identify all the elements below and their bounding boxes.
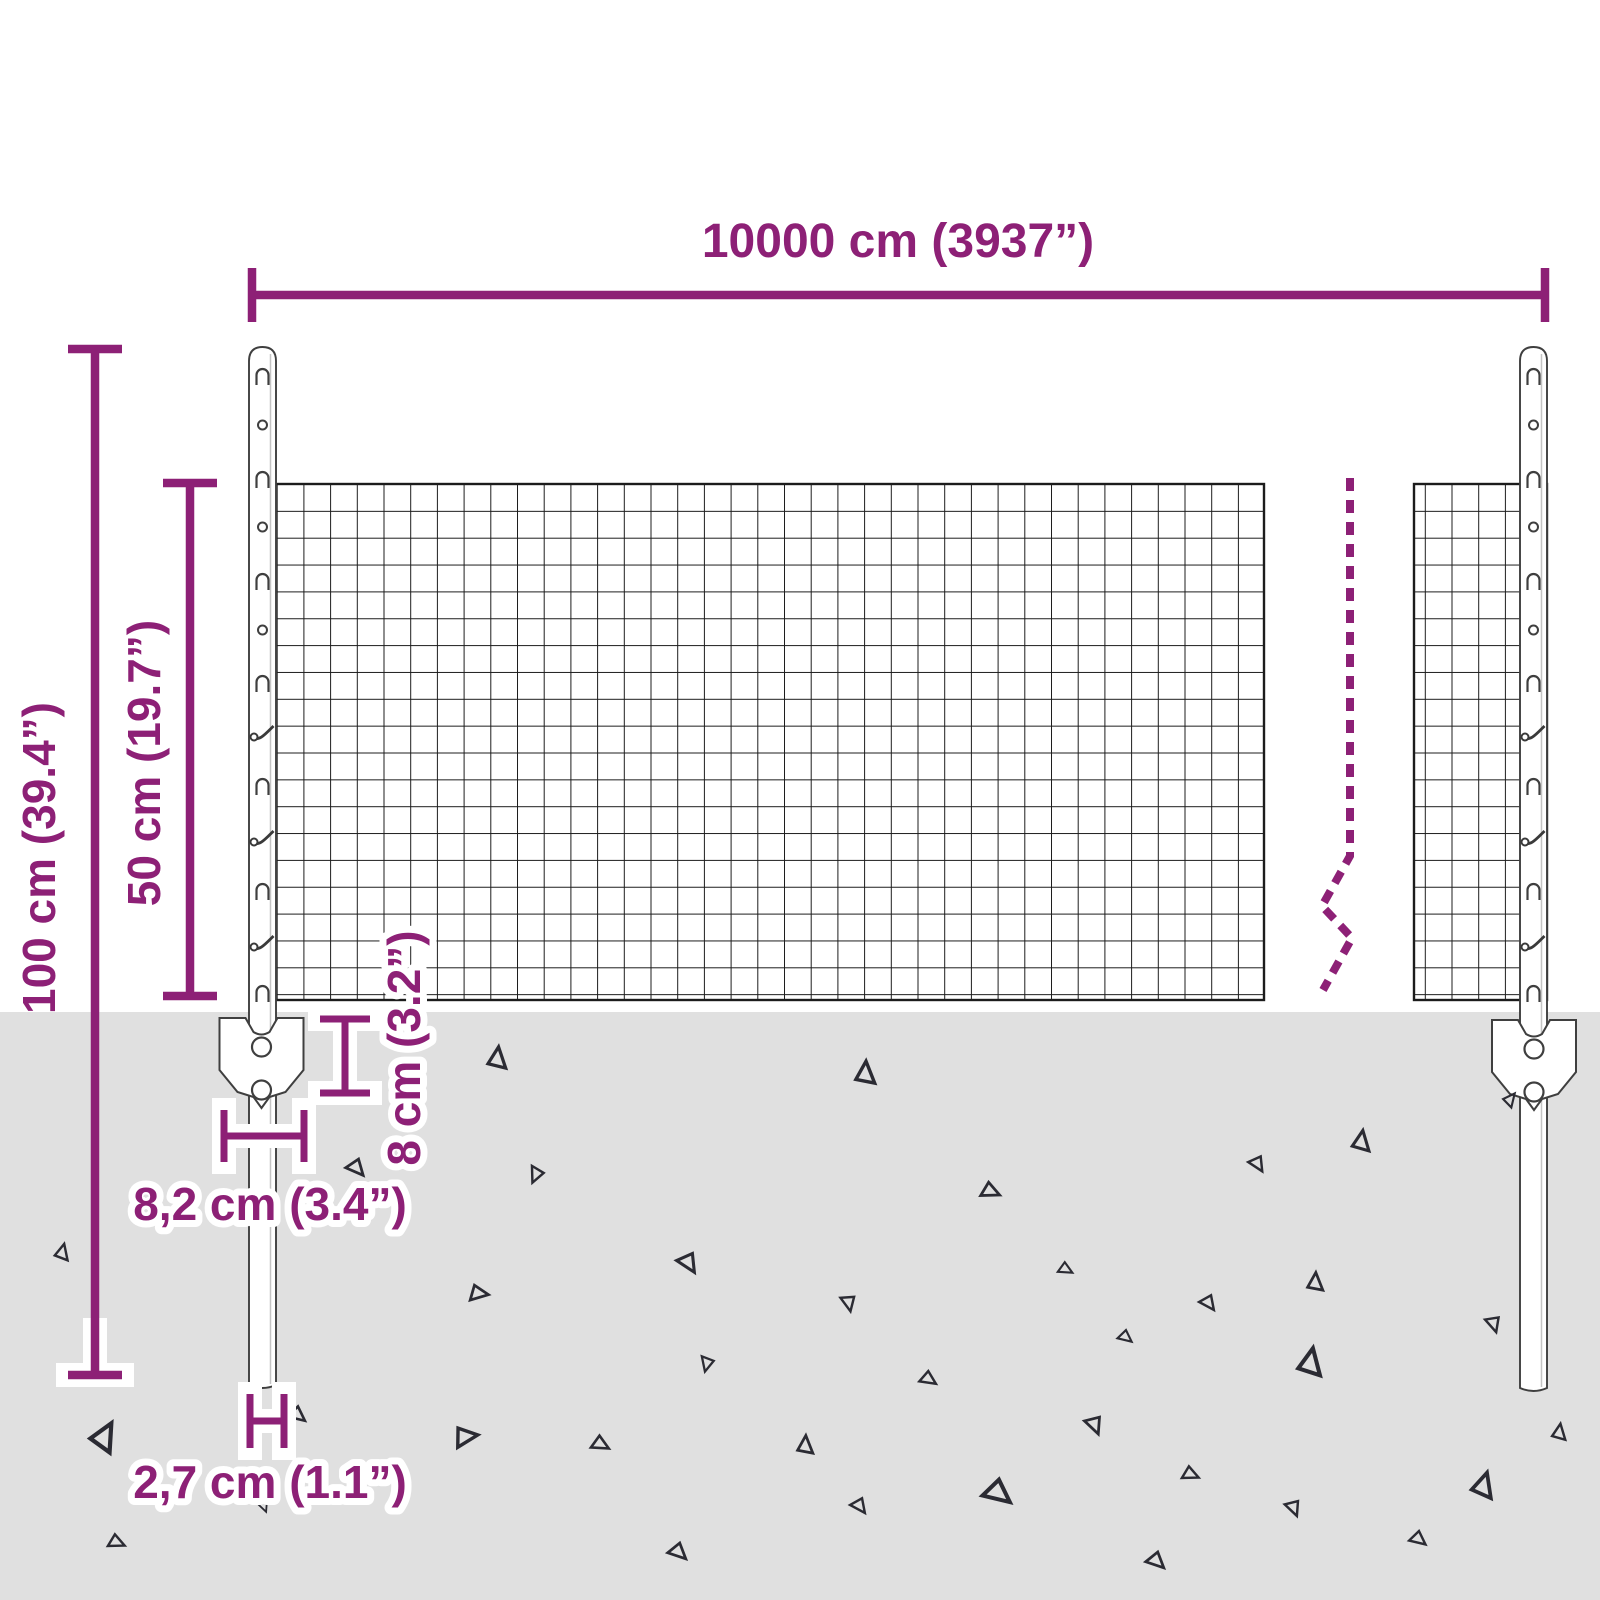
ground-soil [0,1012,1600,1600]
dim-anchor-width-label: 8,2 cm (3.4”) [133,1178,407,1230]
right-post-hole [1529,421,1538,430]
break-line [1322,478,1352,990]
dim-anchor-depth-label: 8 cm (3.2”) [378,930,430,1165]
left-post [249,347,276,1388]
left-anchor-hole-bottom [252,1081,271,1100]
left-anchor-hole-top [252,1038,271,1057]
dim-mesh-height-label: 50 cm (19.7”) [118,620,170,906]
dim-width-line [252,268,1545,322]
left-post-hole [258,626,267,635]
dim-mesh-height-line [163,483,217,996]
right-anchor-hole-bottom [1525,1083,1544,1102]
right-anchor-hole-top [1525,1040,1544,1059]
left-post-hole [258,523,267,532]
dim-post-width-label: 2,7 cm (1.1”) [133,1456,407,1508]
right-post [1520,347,1547,1391]
dim-total-height-label: 100 cm (39.4”) [13,702,65,1014]
fence-dimension-diagram: 10000 cm (3937”) 100 cm (39.4”) 50 cm (1… [0,0,1600,1600]
dim-width-label: 10000 cm (3937”) [702,215,1094,268]
diagram-canvas: 10000 cm (3937”) 100 cm (39.4”) 50 cm (1… [0,0,1600,1600]
left-post-hole [258,421,267,430]
right-post-hole [1529,626,1538,635]
right-post-hole [1529,523,1538,532]
mesh-panel-left [250,484,1264,1000]
